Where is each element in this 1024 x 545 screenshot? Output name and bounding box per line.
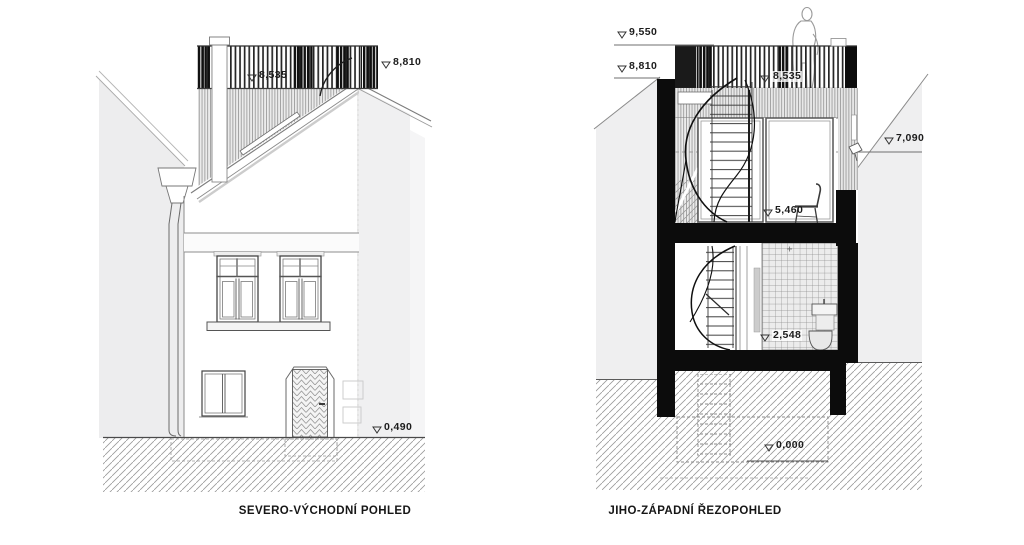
chimney [210, 37, 230, 182]
wall-slot-window [852, 115, 857, 140]
level-marker-icon [764, 444, 774, 452]
level-value: 2,548 [772, 330, 802, 341]
level-label-terrace-left: 8,535 [247, 70, 287, 81]
level-value: 7,090 [896, 133, 924, 144]
ground-floor-window [199, 371, 248, 417]
cornice-band [184, 233, 359, 252]
foundation-right [830, 363, 846, 415]
level-value: 8,535 [772, 71, 802, 82]
window-left [214, 252, 261, 323]
level-label-terrace-right: 8,535 [760, 71, 802, 82]
entrance-door [286, 367, 334, 437]
level-marker-icon [381, 61, 391, 69]
drawing-title-right: JIHO-ZÁPADNÍ ŘEZOPOHLED [600, 506, 790, 518]
level-value: 0,490 [384, 422, 412, 433]
sink [812, 299, 837, 330]
window-right [277, 252, 324, 323]
level-value: 8,810 [629, 61, 657, 72]
wall-cut-right-lower [838, 243, 858, 363]
floor-slab-mid [657, 223, 846, 243]
level-marker-icon [247, 74, 257, 82]
level-marker-icon [372, 426, 382, 434]
level-label-ridge-left: 8,810 [381, 57, 421, 68]
level-label-plinth-left: 0,490 [372, 422, 412, 433]
ground-hatch-right [596, 363, 922, 491]
level-value: 0,000 [776, 440, 804, 451]
drawing-sheet: { "sheet": { "type": "architectural elev… [0, 0, 1024, 545]
level-label-attic-right: 8,810 [617, 61, 657, 72]
level-label-upper-floor: 5,460 [763, 205, 803, 216]
floor-slab-ground [657, 350, 846, 371]
level-marker-icon [760, 75, 770, 83]
level-marker-icon [763, 209, 773, 217]
level-marker-icon [760, 334, 770, 342]
level-value: 9,550 [629, 27, 657, 38]
level-label-ground-floor: 2,548 [760, 330, 802, 341]
drawing-title-left: SEVERO-VÝCHODNÍ POHLED [230, 506, 420, 518]
planter-box [831, 39, 846, 47]
ground-hatch-left [103, 438, 425, 493]
terrace-parapet-band [675, 88, 858, 118]
level-value: 8,810 [393, 57, 421, 68]
level-marker-icon [617, 31, 627, 39]
architectural-drawing-canvas [0, 0, 1024, 545]
roof-slope-right [356, 82, 432, 437]
lower-floor-interior [675, 243, 838, 350]
toilet [809, 331, 832, 350]
level-marker-icon [884, 137, 894, 145]
upper-windows [207, 252, 330, 331]
level-label-base: 0,000 [764, 440, 804, 451]
level-value: 5,460 [775, 205, 803, 216]
basement-stair-ladder [697, 374, 731, 456]
level-marker-icon [617, 65, 627, 73]
wall-cut-right-upper [836, 190, 856, 246]
level-label-neighbor-eave: 7,090 [884, 133, 924, 144]
window-sill-band [207, 322, 330, 331]
neighbor-wall-left [96, 71, 188, 438]
neighbor-wall-left-section [594, 77, 660, 380]
level-value: 8,535 [259, 70, 287, 81]
neighbor-wall-right-section [856, 74, 928, 363]
level-label-railing-top: 9,550 [617, 27, 657, 38]
